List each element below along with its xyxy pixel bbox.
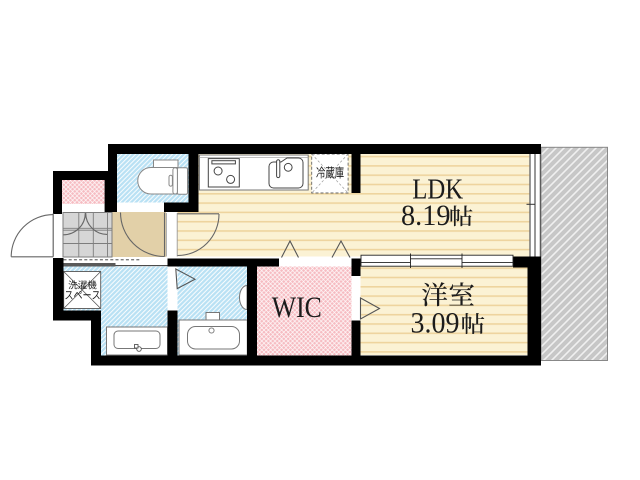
svg-text:3.09: 3.09 (411, 308, 460, 340)
svg-text:8.19: 8.19 (401, 200, 451, 232)
svg-text:WIC: WIC (272, 292, 322, 324)
